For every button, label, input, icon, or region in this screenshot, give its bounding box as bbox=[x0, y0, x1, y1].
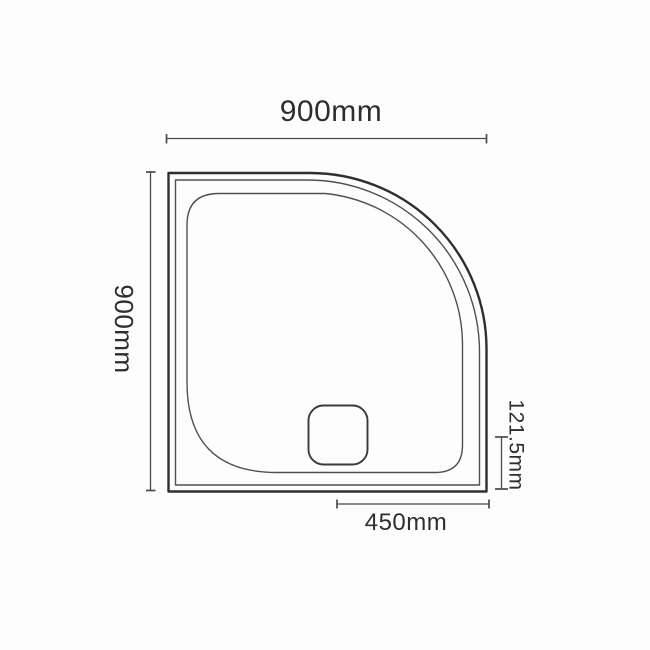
diagram-canvas: 900mm 900mm 121.5mm 450mm bbox=[0, 0, 650, 650]
basin-outline bbox=[187, 194, 463, 473]
dimension-label-left: 900mm bbox=[111, 284, 137, 373]
dimension-label-right: 121.5mm bbox=[506, 399, 527, 490]
dimension-top-900mm bbox=[167, 134, 487, 144]
tray-rim-line bbox=[176, 180, 480, 485]
waste-outline bbox=[309, 406, 368, 465]
tray-outer-outline bbox=[169, 173, 487, 492]
dimension-bottom-450mm bbox=[337, 500, 489, 509]
dimension-left-900mm bbox=[146, 172, 156, 491]
dimension-label-top: 900mm bbox=[280, 97, 383, 127]
dimension-label-bottom: 450mm bbox=[365, 511, 448, 535]
